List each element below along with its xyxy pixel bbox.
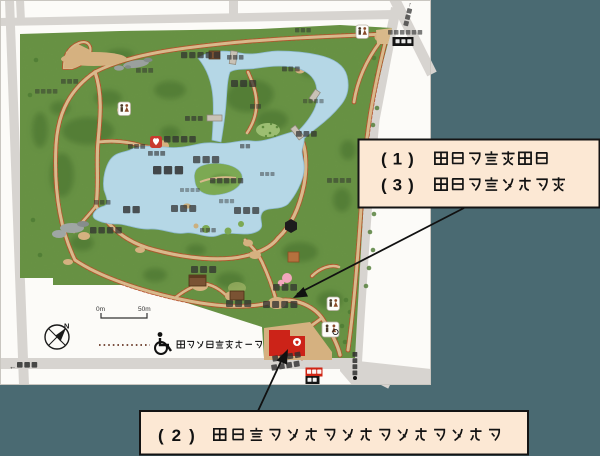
svg-text:←: ← bbox=[9, 362, 17, 371]
svg-text:50m: 50m bbox=[138, 306, 151, 313]
svg-text:0m: 0m bbox=[96, 306, 105, 313]
svg-text:(2): (2) bbox=[158, 426, 203, 445]
svg-text:(3): (3) bbox=[381, 176, 420, 195]
svg-text:(1): (1) bbox=[381, 150, 420, 169]
svg-text:N: N bbox=[64, 322, 69, 331]
